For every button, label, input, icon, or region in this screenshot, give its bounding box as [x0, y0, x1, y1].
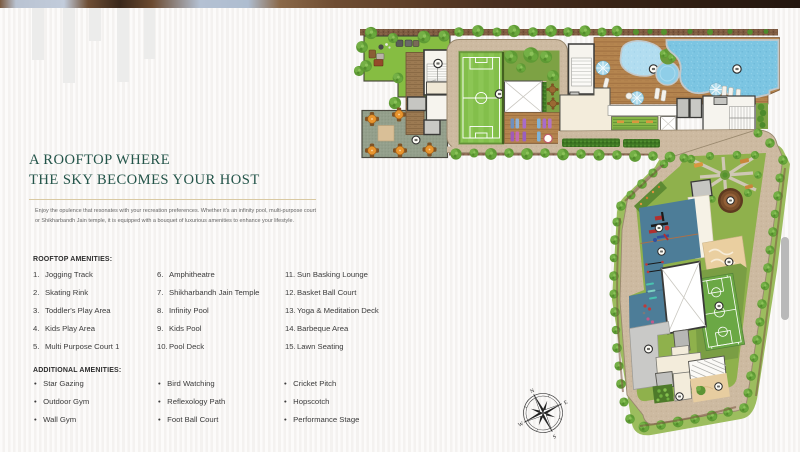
svg-text:W: W: [517, 421, 525, 429]
svg-text:N: N: [529, 388, 535, 395]
svg-text:E: E: [563, 399, 569, 406]
svg-text:S: S: [552, 434, 557, 441]
